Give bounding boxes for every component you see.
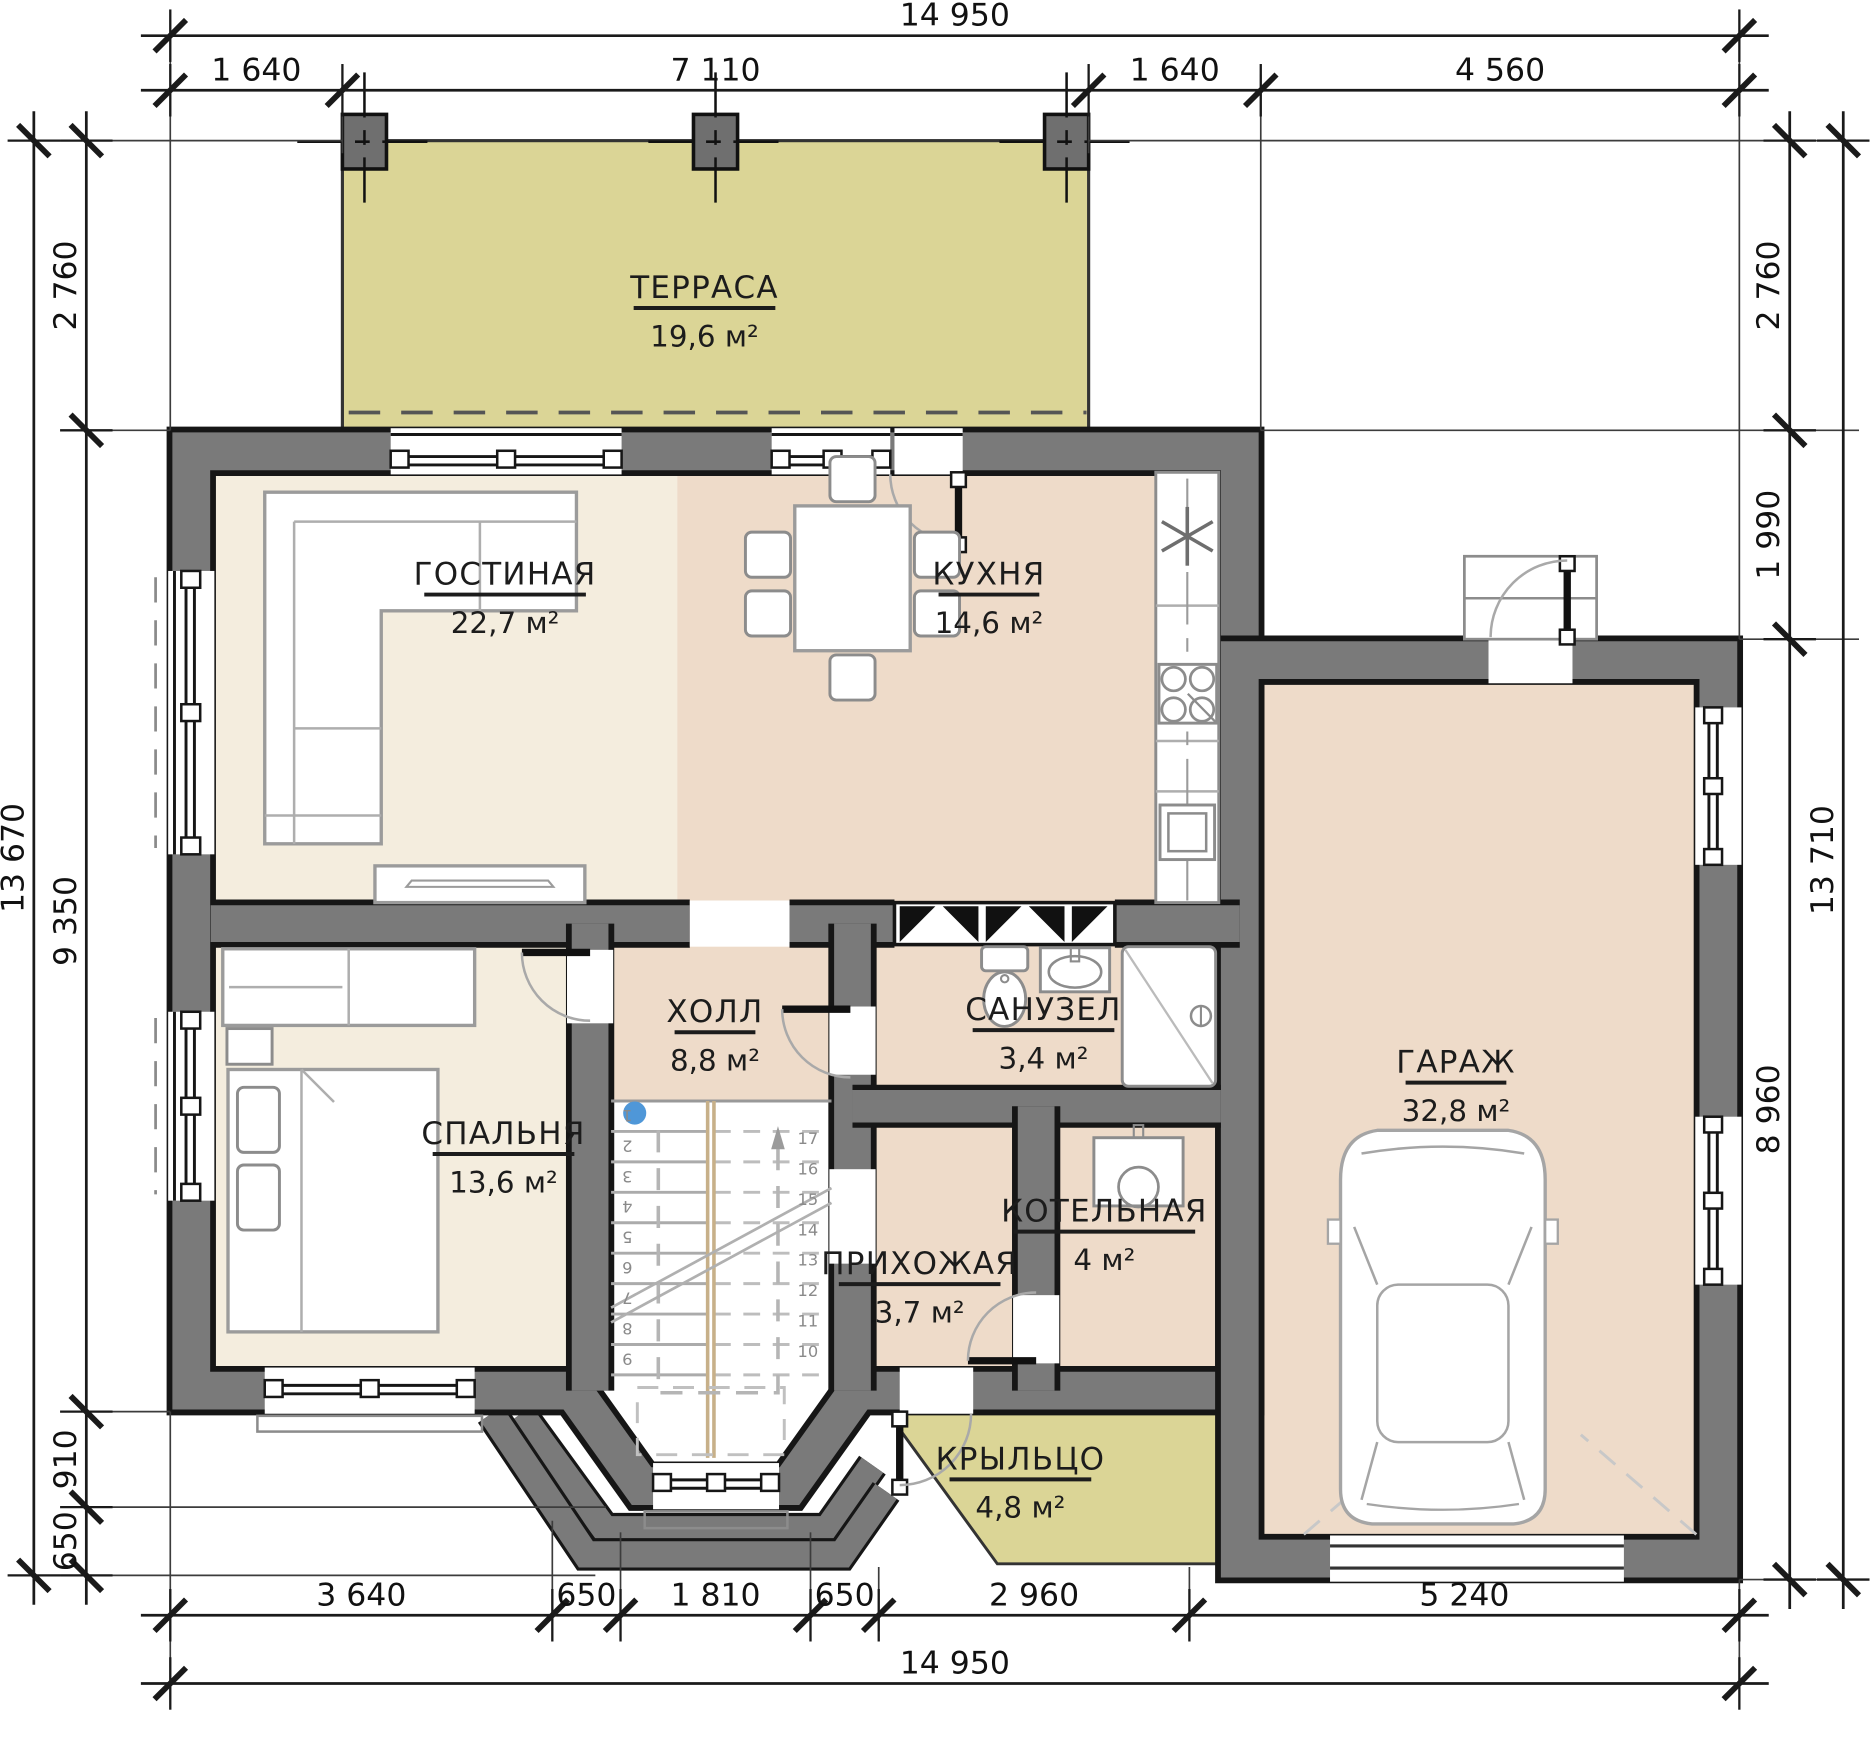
dimension-line-vertical: 13 710 bbox=[1805, 111, 1870, 1609]
shower bbox=[1122, 947, 1215, 1087]
porch-area bbox=[894, 1412, 1218, 1564]
room-area: 3,4 м² bbox=[999, 1041, 1089, 1075]
dimension-label: 2 760 bbox=[48, 240, 84, 330]
dimension-label: 650 bbox=[48, 1511, 84, 1571]
dimension-label: 2 760 bbox=[1751, 240, 1787, 330]
dimension-label: 5 240 bbox=[1419, 1577, 1509, 1613]
dimension-line-horizontal: 14 950 bbox=[141, 1646, 1769, 1710]
room-area: 3,7 м² bbox=[875, 1295, 965, 1329]
room-area: 4,8 м² bbox=[975, 1491, 1065, 1525]
oven bbox=[1160, 805, 1215, 860]
stair-step-number: 12 bbox=[798, 1281, 819, 1300]
stair-step-number: 1 bbox=[622, 1106, 632, 1125]
room-name: САНУЗЕЛ bbox=[965, 992, 1121, 1028]
room-area: 8,8 м² bbox=[670, 1044, 760, 1078]
dimension-label: 13 710 bbox=[1805, 805, 1841, 915]
stair-step-number: 3 bbox=[622, 1167, 632, 1186]
stove bbox=[1159, 664, 1217, 723]
dimension-label: 1 640 bbox=[211, 52, 301, 88]
room-area: 32,8 м² bbox=[1402, 1094, 1511, 1128]
bathroom-sink bbox=[1040, 948, 1109, 992]
room-name: КРЫЛЬЦО bbox=[936, 1441, 1106, 1477]
dimension-label: 3 640 bbox=[316, 1577, 406, 1613]
stair-step-number: 13 bbox=[798, 1251, 819, 1270]
dimension-label: 2 960 bbox=[989, 1577, 1079, 1613]
room-name: ГАРАЖ bbox=[1396, 1045, 1516, 1081]
dimension-label: 1 990 bbox=[1751, 490, 1787, 580]
stair-step-number: 9 bbox=[622, 1349, 632, 1368]
stair-step-number: 17 bbox=[798, 1129, 819, 1148]
room-name: ХОЛЛ bbox=[666, 994, 763, 1030]
stair-step-number: 11 bbox=[798, 1312, 819, 1331]
kitchen-counter bbox=[1156, 472, 1219, 902]
dimension-label: 650 bbox=[556, 1577, 616, 1613]
dimension-label: 650 bbox=[815, 1577, 875, 1613]
wardrobe bbox=[223, 949, 475, 1026]
stair-step-number: 8 bbox=[622, 1319, 632, 1338]
room-name: ГОСТИНАЯ bbox=[414, 557, 597, 593]
dimension-label: 14 950 bbox=[900, 1646, 1010, 1682]
stair-step-number: 14 bbox=[798, 1220, 819, 1239]
garage-side-door bbox=[1464, 556, 1596, 644]
room-name: ТЕРРАСА bbox=[629, 270, 779, 306]
vent-shaft bbox=[894, 903, 1114, 945]
dimension-line-horizontal: 1 6407 1101 6404 560 bbox=[141, 52, 1769, 116]
dimension-label: 910 bbox=[48, 1429, 84, 1489]
room-area: 22,7 м² bbox=[451, 606, 560, 640]
dimension-label: 8 960 bbox=[1751, 1064, 1787, 1154]
dimension-label: 7 110 bbox=[670, 52, 760, 88]
room-name: КОТЕЛЬНАЯ bbox=[1001, 1194, 1208, 1230]
stair-step-number: 7 bbox=[622, 1289, 632, 1308]
room-area: 13,6 м² bbox=[449, 1165, 558, 1199]
dimension-line-vertical: 2 7609 350910650 bbox=[48, 111, 113, 1605]
dimension-label: 13 670 bbox=[0, 803, 31, 913]
stair-step-number: 4 bbox=[622, 1197, 632, 1216]
floor-plan-page: 1234567891716151413121110 14 9501 6407 1… bbox=[0, 0, 1875, 1737]
stair-step-number: 16 bbox=[798, 1159, 819, 1178]
dimension-line-vertical: 13 670 bbox=[0, 111, 60, 1605]
room-area: 14,6 м² bbox=[935, 606, 1044, 640]
stair-step-number: 15 bbox=[798, 1190, 819, 1209]
dimension-label: 9 350 bbox=[48, 876, 84, 966]
room-area: 19,6 м² bbox=[650, 319, 759, 353]
tv-cabinet bbox=[375, 866, 585, 903]
dimension-label: 4 560 bbox=[1455, 52, 1545, 88]
car bbox=[1328, 1130, 1558, 1524]
stair-step-number: 6 bbox=[622, 1258, 632, 1277]
stair-step-number: 10 bbox=[798, 1342, 819, 1361]
dimension-label: 14 950 bbox=[900, 0, 1010, 34]
dimension-line-horizontal: 3 6406501 8106502 9605 240 bbox=[141, 1577, 1769, 1641]
dimension-label: 1 810 bbox=[670, 1577, 760, 1613]
stair-step-number: 5 bbox=[622, 1228, 632, 1247]
stair-step-number: 2 bbox=[622, 1136, 632, 1155]
room-name: ПРИХОЖАЯ bbox=[821, 1246, 1018, 1282]
room-name: СПАЛЬНЯ bbox=[421, 1116, 585, 1152]
room-area: 4 м² bbox=[1073, 1243, 1135, 1277]
bed bbox=[227, 1029, 438, 1332]
dimension-label: 1 640 bbox=[1130, 52, 1220, 88]
room-name: КУХНЯ bbox=[932, 557, 1045, 593]
floor-plan: 1234567891716151413121110 14 9501 6407 1… bbox=[0, 0, 1875, 1737]
